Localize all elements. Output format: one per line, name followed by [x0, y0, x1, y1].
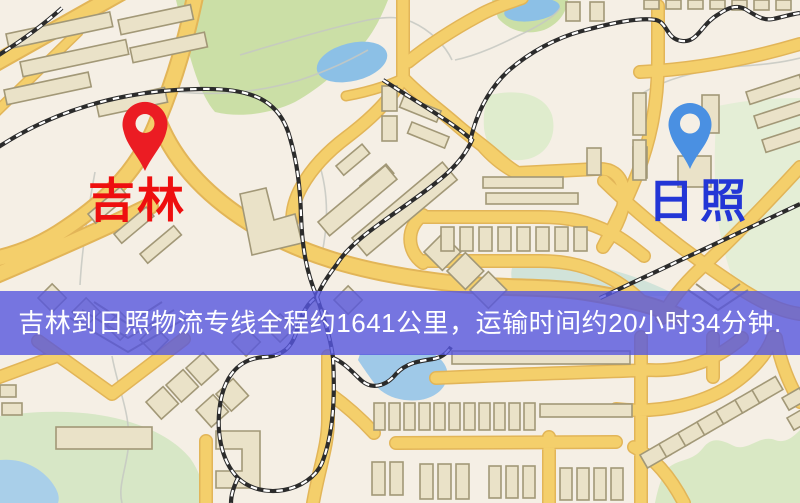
map-canvas [0, 0, 800, 503]
origin-label: 吉林 [88, 177, 186, 224]
destination-label: 日照 [648, 178, 752, 224]
route-info-text: 吉林到日照物流专线全程约1641公里，运输时间约20小时34分钟. [0, 291, 800, 355]
route-info-banner: 吉林到日照物流专线全程约1641公里，运输时间约20小时34分钟. [0, 291, 800, 355]
map-image[interactable]: 吉林 日照 吉林到日照物流专线全程约1641公里，运输时间约20小时34分钟. [0, 0, 800, 503]
